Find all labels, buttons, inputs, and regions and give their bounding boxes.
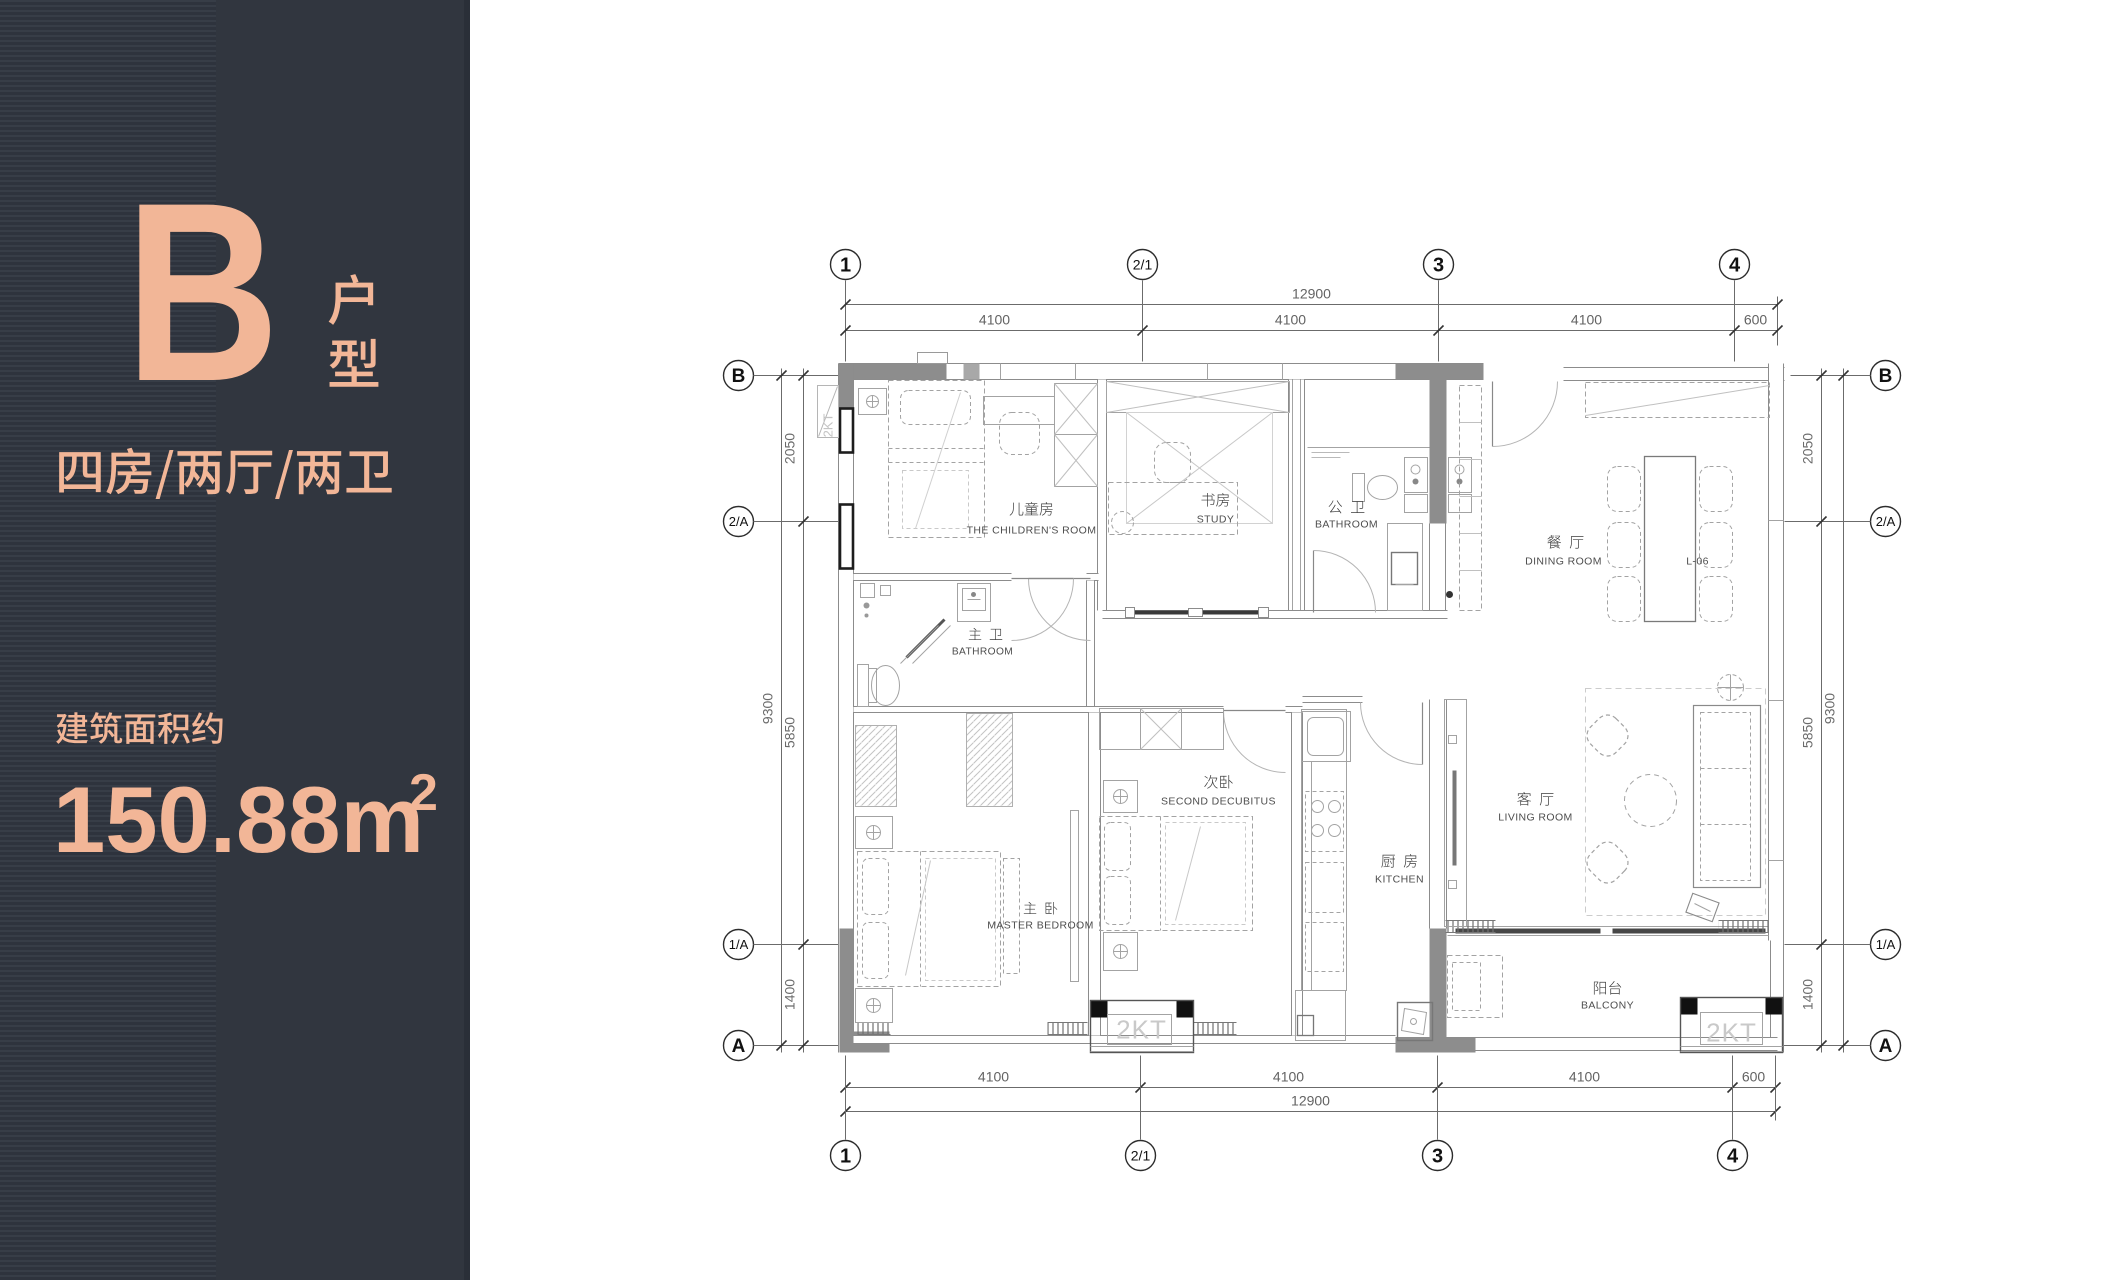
svg-text:1/A: 1/A: [1876, 937, 1896, 952]
svg-text:12900: 12900: [1292, 286, 1331, 302]
svg-text:9300: 9300: [1822, 693, 1838, 724]
svg-text:1/A: 1/A: [729, 937, 749, 952]
svg-text:2KT: 2KT: [821, 414, 836, 438]
svg-text:2050: 2050: [1800, 433, 1816, 464]
svg-text:B: B: [732, 366, 746, 387]
svg-text:4100: 4100: [1569, 1069, 1600, 1085]
svg-text:4100: 4100: [1273, 1069, 1304, 1085]
svg-text:LIVING ROOM: LIVING ROOM: [1498, 812, 1572, 824]
svg-text:B: B: [125, 149, 280, 434]
svg-text:1400: 1400: [1800, 979, 1816, 1010]
svg-text:1: 1: [840, 255, 851, 277]
svg-text:KITCHEN: KITCHEN: [1375, 874, 1424, 886]
svg-text:2KT: 2KT: [1116, 1015, 1167, 1045]
svg-text:STUDY: STUDY: [1197, 514, 1235, 526]
svg-text:600: 600: [1744, 312, 1768, 328]
svg-text:BATHROOM: BATHROOM: [952, 647, 1013, 658]
svg-text:1: 1: [840, 1146, 851, 1168]
svg-text:BALCONY: BALCONY: [1581, 1000, 1634, 1012]
svg-text:4100: 4100: [978, 1069, 1009, 1085]
svg-text:4: 4: [1727, 1146, 1739, 1168]
svg-text:2: 2: [409, 764, 438, 822]
svg-text:A: A: [1879, 1036, 1893, 1057]
svg-text:3: 3: [1433, 255, 1444, 277]
svg-text:MASTER BEDROOM: MASTER BEDROOM: [987, 920, 1094, 932]
svg-text:150.88m: 150.88m: [53, 767, 424, 872]
svg-text:BATHROOM: BATHROOM: [1315, 519, 1378, 531]
svg-text:600: 600: [1742, 1069, 1766, 1085]
svg-text:DINING ROOM: DINING ROOM: [1525, 556, 1602, 568]
svg-text:2KT: 2KT: [1706, 1018, 1757, 1048]
svg-text:1400: 1400: [782, 979, 798, 1010]
svg-text:THE CHILDREN'S ROOM: THE CHILDREN'S ROOM: [967, 525, 1097, 537]
svg-text:4100: 4100: [979, 312, 1010, 328]
svg-text:4: 4: [1729, 255, 1741, 277]
svg-text:5850: 5850: [782, 717, 798, 748]
svg-text:B: B: [1879, 366, 1893, 387]
svg-text:5850: 5850: [1800, 717, 1816, 748]
svg-text:9300: 9300: [760, 693, 776, 724]
svg-text:L-06: L-06: [1686, 556, 1709, 568]
svg-text:2/1: 2/1: [1131, 1147, 1151, 1163]
svg-text:3: 3: [1432, 1146, 1443, 1168]
svg-text:A: A: [732, 1036, 746, 1057]
svg-text:2/A: 2/A: [729, 514, 749, 529]
svg-text:2/A: 2/A: [1876, 514, 1896, 529]
svg-text:SECOND DECUBITUS: SECOND DECUBITUS: [1161, 796, 1276, 808]
svg-text:2050: 2050: [782, 433, 798, 464]
svg-text:4100: 4100: [1571, 312, 1602, 328]
svg-text:12900: 12900: [1291, 1093, 1330, 1109]
svg-text:2/1: 2/1: [1133, 256, 1153, 272]
svg-text:4100: 4100: [1275, 312, 1306, 328]
